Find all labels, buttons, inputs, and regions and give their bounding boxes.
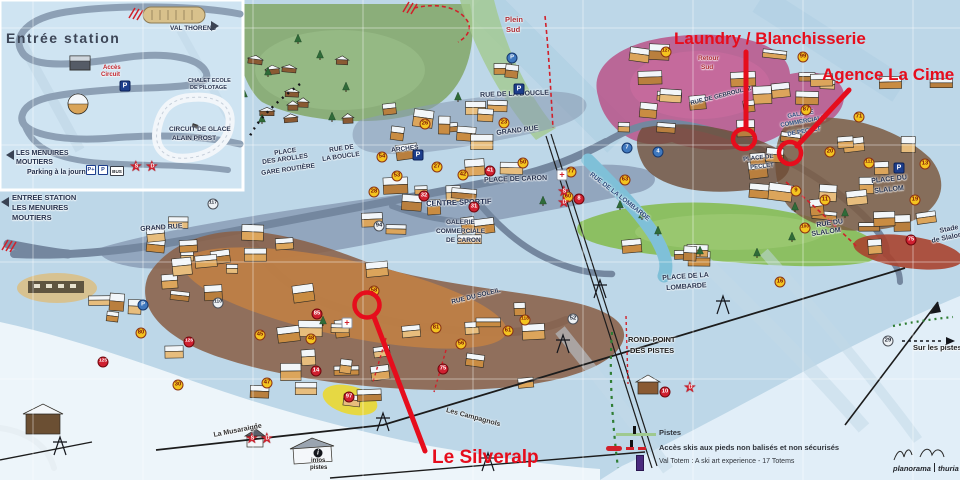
resort-map: VAL THORENSAccèsCircuitCHALET ECOLEDE PI… <box>0 0 960 480</box>
agence-circle <box>779 142 801 164</box>
silveralp-pointer-line <box>374 317 425 451</box>
agence-annotation-label: Agence La Cime <box>822 66 954 83</box>
laundry-annotation-label: Laundry / Blanchisserie <box>674 30 866 47</box>
agence-pointer-line <box>797 90 849 146</box>
silveralp-circle <box>355 293 380 318</box>
laundry-circle <box>733 129 755 149</box>
silveralp-annotation-label: Le Silveralp <box>432 448 539 467</box>
annotation-overlay <box>0 0 960 480</box>
